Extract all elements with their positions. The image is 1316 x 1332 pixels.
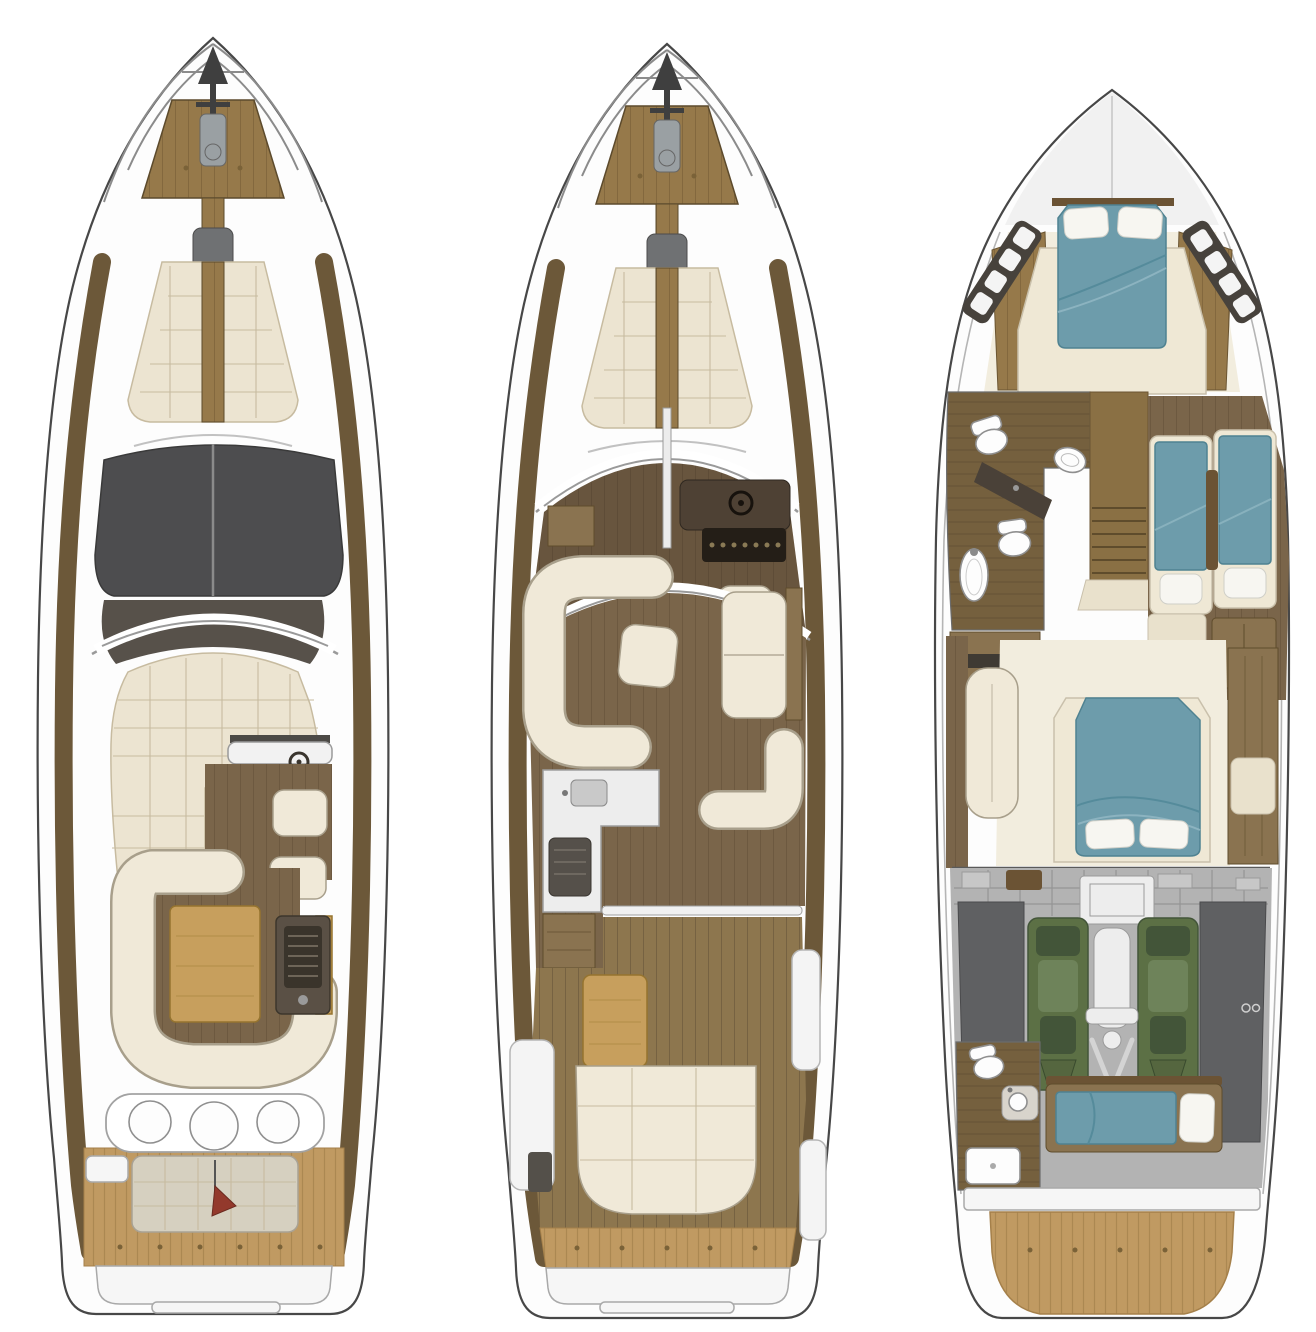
pillow [1085,819,1134,849]
bed-divider [1206,470,1218,570]
nav-cabinet [548,506,594,546]
stowage-box [1006,870,1042,890]
aft-sunpad [132,1156,298,1232]
twin-bed [1155,442,1207,570]
lower-deck-plan [935,90,1289,1318]
engine-hatch [1080,876,1154,924]
crew-sink [1002,1086,1038,1120]
cockpit-table [583,975,647,1067]
mid-toilet [995,518,1032,558]
port-shelf [946,636,968,868]
round-loungers [106,1094,324,1152]
cockpit-bench [576,1066,756,1214]
galley-appliance [549,838,591,896]
flybridge-deck-plan [38,38,389,1314]
wardrobe [1228,648,1278,864]
boarding-step [600,1302,734,1313]
dashboard [680,480,790,530]
pillow [1179,1093,1215,1142]
windlass [654,120,680,172]
bathtub [960,548,988,601]
main-deck-plan [492,44,843,1318]
crew-berth [1056,1092,1176,1144]
side-step [86,1156,128,1182]
pillow [1160,574,1202,604]
deck-plans-svg [0,0,1316,1332]
deck-fitting [692,174,697,179]
deck-fitting [238,166,243,171]
cocktail-table [170,906,260,1022]
stbd-engine [1138,918,1198,1090]
ottoman-table [617,623,679,689]
pillow [1063,206,1109,239]
galley-sink [571,780,607,806]
windlass [200,114,226,166]
hardtop-sunroof [95,444,343,596]
deck-fitting [638,174,643,179]
galley-cabinet [543,914,595,968]
deck-fitting [184,166,189,171]
boat-plans-figure [0,0,1316,1332]
twin-bed [1219,436,1271,564]
wetbar-grill [276,916,332,1014]
transom [964,1188,1260,1210]
swim-platform [990,1212,1234,1314]
salon-door-sill [602,906,802,915]
boarding-step [152,1302,280,1313]
pillow [1117,206,1163,239]
starboard-sofa [722,588,802,720]
wardrobe-seat [1231,758,1275,814]
pillow [1139,819,1188,849]
pillow [1224,568,1266,598]
